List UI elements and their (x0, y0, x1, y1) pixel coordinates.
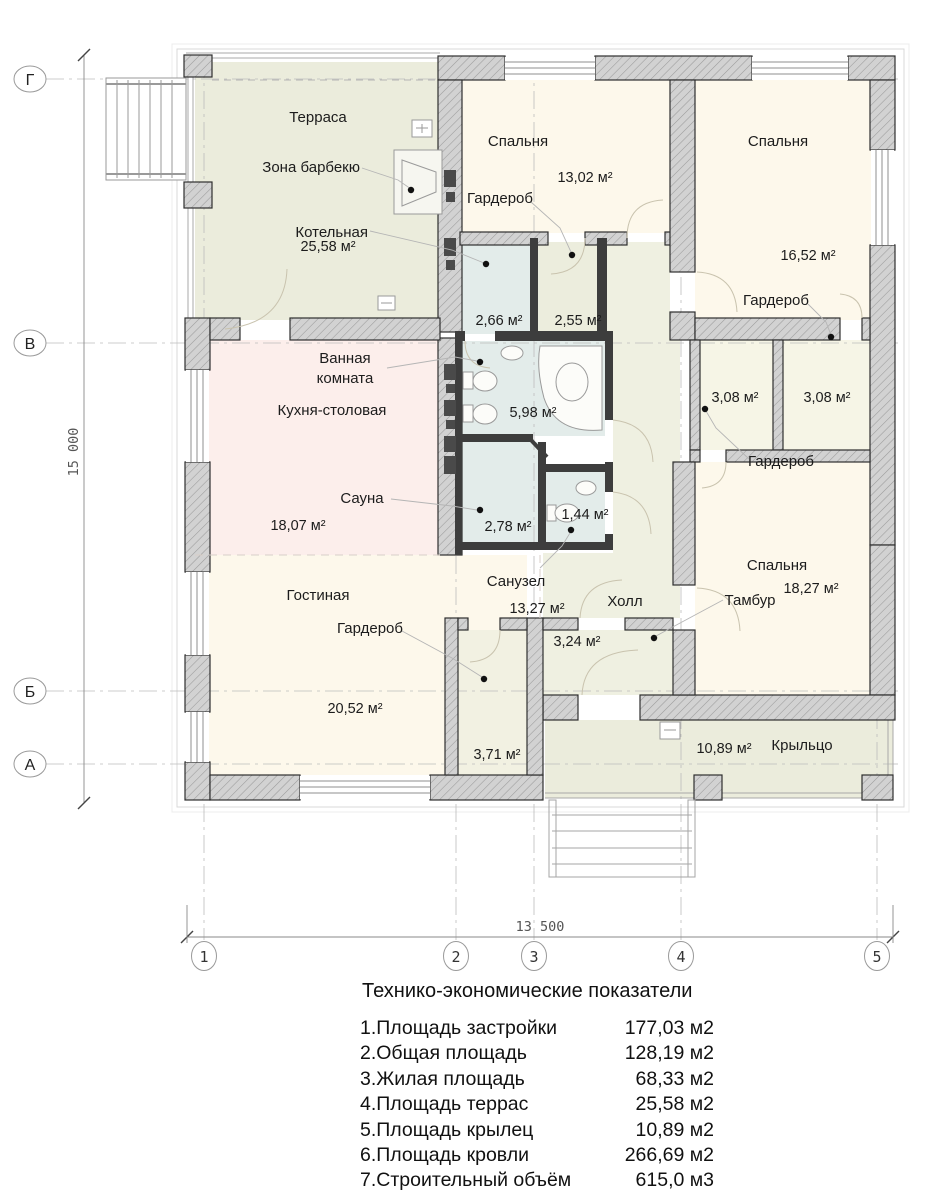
wc-label: Санузел (487, 573, 545, 590)
terrace-stairs (106, 78, 186, 180)
teo-row-value: 177,03 м2 (604, 1016, 714, 1041)
bedroom-tl-label: Спальня (488, 133, 548, 150)
axis-col-5: 5 (872, 948, 881, 966)
bedroom-tr-area: 16,52 м² (780, 248, 835, 264)
axis-row-g: Г (26, 72, 35, 89)
porch-area: 10,89 м² (696, 741, 751, 757)
toilet-2-tank (463, 405, 473, 422)
hall-area: 13,27 м² (509, 601, 564, 617)
sauna-label: Сауна (340, 490, 384, 507)
teo-title: Технико-экономические показатели (362, 980, 714, 1003)
bedroom-tl-floor (460, 80, 672, 233)
teo-table: Технико-экономические показатели 1.Площа… (360, 980, 714, 1194)
teo-row-value: 25,58 м2 (604, 1092, 714, 1117)
wardrobe-lv-area: 3,71 м² (473, 747, 520, 763)
wardrobe-r1-area: 3,08 м² (803, 390, 850, 406)
wardrobe-r1-label: Гардероб (743, 292, 809, 309)
teo-row-label: 5.Площадь крылец (360, 1118, 533, 1143)
floor-plan-page: { "plan": { "rooms": { "terrace": {"name… (0, 0, 929, 1200)
bedroom-tl-area: 13,02 м² (557, 170, 612, 186)
teo-row-label: 2.Общая площадь (360, 1041, 527, 1066)
porch-label: Крыльцо (771, 737, 832, 754)
terrace-area: 25,58 м² (300, 239, 355, 255)
hall-label: Холл (607, 593, 642, 610)
teo-row: 6.Площадь кровли 266,69 м2 (360, 1143, 714, 1168)
wardrobe-tl-area: 2,55 м² (554, 313, 601, 329)
teo-row: 2.Общая площадь 128,19 м2 (360, 1041, 714, 1066)
bedroom-br-floor (695, 462, 870, 695)
teo-row-value: 266,69 м2 (604, 1143, 714, 1168)
terrace-label: Терраса (289, 109, 347, 126)
wc-area: 1,44 м² (561, 507, 608, 523)
teo-row-label: 4.Площадь террас (360, 1092, 528, 1117)
sauna-area: 2,78 м² (484, 519, 531, 535)
axis-col-2: 2 (451, 948, 460, 966)
teo-row-value: 10,89 м2 (604, 1118, 714, 1143)
wc-sink (576, 481, 596, 495)
tambour-label: Тамбур (725, 592, 776, 609)
bathroom-label-line1: Ванная (319, 350, 370, 367)
teo-row-value: 615,0 м3 (604, 1168, 714, 1193)
teo-row-label: 1.Площадь застройки (360, 1016, 557, 1041)
bedroom-tr-floor (695, 80, 871, 320)
dim-vertical: 15 000 (66, 428, 82, 477)
axis-col-4: 4 (676, 948, 685, 966)
living-label: Гостиная (287, 587, 350, 604)
teo-row-value: 68,33 м2 (604, 1067, 714, 1092)
teo-row: 4.Площадь террас 25,58 м2 (360, 1092, 714, 1117)
bedroom-tr-label: Спальня (748, 133, 808, 150)
teo-row: 1.Площадь застройки 177,03 м2 (360, 1016, 714, 1041)
axis-row-b: Б (25, 684, 36, 701)
teo-row: 5.Площадь крылец 10,89 м2 (360, 1118, 714, 1143)
living-area: 20,52 м² (327, 701, 382, 717)
bathroom-area: 5,98 м² (509, 405, 556, 421)
wardrobe-tl-label: Гардероб (467, 190, 533, 207)
bedroom-br-label: Спальня (747, 557, 807, 574)
bathroom-label-line2: комната (317, 370, 374, 387)
wardrobe-r2-area: 3,08 м² (711, 390, 758, 406)
bbq-label: Зона барбекю (262, 159, 360, 176)
teo-row-label: 3.Жилая площадь (360, 1067, 525, 1092)
axis-row-a: А (25, 757, 36, 774)
bedroom-br-area: 18,27 м² (783, 581, 838, 597)
boiler-area: 2,66 м² (475, 313, 522, 329)
wardrobe-lv-label: Гардероб (337, 620, 403, 637)
teo-row-label: 6.Площадь кровли (360, 1143, 529, 1168)
kitchen-label: Кухня-столовая (278, 402, 387, 419)
axis-col-3: 3 (529, 948, 538, 966)
wardrobe-r2-label: Гардероб (748, 453, 814, 470)
dim-horizontal: 13 500 (516, 919, 565, 935)
teo-row: 3.Жилая площадь 68,33 м2 (360, 1067, 714, 1092)
tambour-area: 3,24 м² (553, 634, 600, 650)
teo-row-label: 7.Строительный объём (360, 1168, 571, 1193)
toilet-2-bowl (473, 404, 497, 424)
teo-row-value: 128,19 м2 (604, 1041, 714, 1066)
bath-sink (501, 346, 523, 360)
axis-col-1: 1 (199, 948, 208, 966)
teo-row: 7.Строительный объём 615,0 м3 (360, 1168, 714, 1193)
toilet-1-tank (463, 372, 473, 389)
kitchen-area: 18,07 м² (270, 518, 325, 534)
axis-row-v: В (25, 336, 36, 353)
toilet-1-bowl (473, 371, 497, 391)
